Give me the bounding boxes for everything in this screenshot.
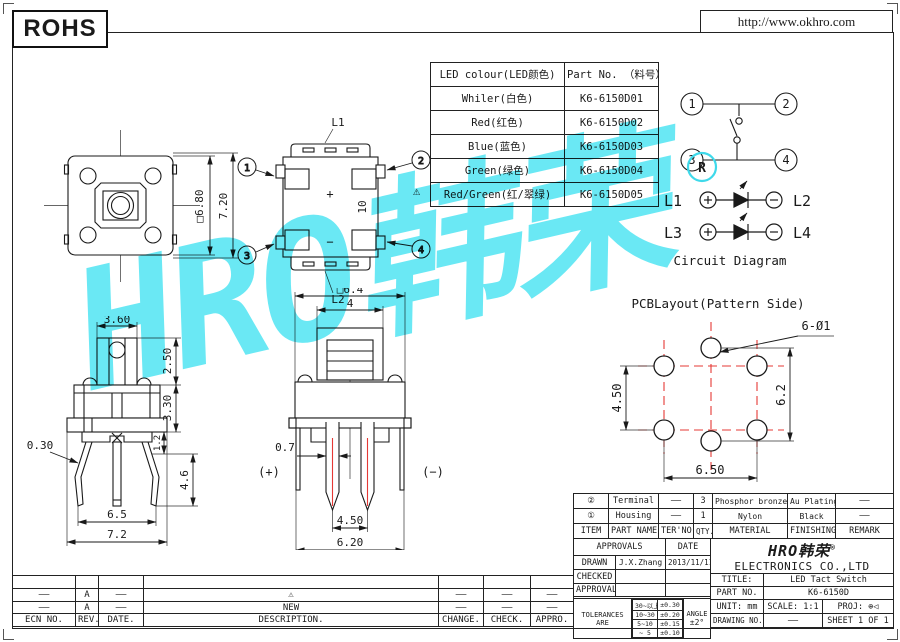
part-no-cell: K6-6150D05 [565,183,659,207]
date-cell [99,576,144,589]
date-cell: —— [99,602,144,614]
qty-cell: 1 [694,509,713,524]
change-cell: —— [439,589,484,602]
led-l4-label: L4 [793,224,811,242]
table-row: Blue(蓝色) K6-6150D03 [431,135,659,159]
parts-header-row: ITEM PART NAME TER'NO. QTY. MATERIAL FIN… [574,524,894,539]
part-name-header: PART NAME [609,524,659,539]
led-colour-cell: Red/Green(红/翠绿) [431,183,565,207]
remark-header: REMARK [836,524,894,539]
led-colour-header: LED colour(LED颜色) [431,63,565,87]
tolerance-strip: TOLERANCES ARE 30~以上±0.30 10~30±0.20 5~1… [573,598,711,639]
finishing-cell: Au Plating [788,494,836,509]
desc-cell [144,576,439,589]
approvals-date [666,584,711,597]
material-cell: Phosphor bronze [713,494,788,509]
ter-no-header: TER'NO. [659,524,694,539]
terminal-4-label: 4 [782,153,789,167]
ecn-cell: —— [13,589,76,602]
table-row: ① Housing —— 1 Nylon Black —— [574,509,894,524]
rev-cell [76,576,99,589]
check-header: CHECK. [484,614,531,627]
terminal-3-callout: 3 [244,251,250,262]
dim-label: 1.2 [153,435,163,451]
table-row: DRAWING NO. —— SHEET 1 OF 1 [711,614,894,628]
appro-cell: —— [531,602,574,614]
change-cell [439,576,484,589]
tolerance-mini-table: 30~以上±0.30 10~30±0.20 5~10±0.15 ~ 5±0.10 [632,599,683,638]
company-name: ELECTRONICS CO.,LTD [713,560,891,573]
checked-date [666,570,711,584]
approvals-header: APPROVALS [574,539,666,556]
tol-value: ±0.10 [658,629,683,638]
approvals-label: APPROVALS [574,584,616,597]
table-row: CHECKED [574,570,711,584]
revision-header-row: ECN NO. REV. DATE. DESCRIPTION. CHANGE. … [13,614,574,627]
part-no-cell: K6-6150D02 [565,111,659,135]
title-block: HRO韩荣® ELECTRONICS CO.,LTD TITLE: LED Ta… [710,538,894,628]
ecn-cell: —— [13,602,76,614]
tol-range: ~ 5 [633,629,658,638]
check-cell: —— [484,602,531,614]
terminal-1-label: 1 [688,97,695,111]
dim-label: 7.20 [217,193,230,220]
table-row: TITLE: LED Tact Switch [711,574,894,587]
check-cell: —— [484,589,531,602]
dim-label: 4.50 [610,384,624,413]
led-row-1 [700,181,782,208]
dim-label: 0.7 [275,441,295,454]
led-l2-label: L2 [793,192,811,210]
led-row-2 [700,213,782,240]
table-row: ② Terminal —— 3 Phosphor bronze Au Plati… [574,494,894,509]
table-row: —— A —— ⚠ —— —— —— [13,589,574,602]
dim-label: 6.20 [337,536,364,549]
revision-table: —— A —— ⚠ —— —— —— —— A —— NEW —— —— —— … [12,575,574,627]
table-row: Whiler(白色) K6-6150D01 [431,87,659,111]
qty-header: QTY. [694,524,713,539]
bottom-view-drawing: + − 10 L1 L2 1 2 3 4 [233,112,438,307]
title-label: TITLE: [711,574,764,587]
dim-label: 4.50 [337,514,364,527]
top-view-drawing: □6.80 7.20 [38,114,253,304]
part-no-value: K6-6150D [764,587,894,600]
tol-value: ±0.20 [658,611,683,620]
dim-label: 7.2 [107,528,127,541]
drawn-date: 2013/11/11 [666,556,711,570]
ecn-header: ECN NO. [13,614,76,627]
item-cell: ② [574,494,609,509]
terminal-2-callout: 2 [418,156,424,167]
title-value: LED Tact Switch [764,574,894,587]
polarity-plus-mark: + [326,187,333,201]
front-view-drawing: □6.4 4 0.7 (+) (−) 4.50 6.20 [245,288,460,550]
pcb-title: PCBLayout(Pattern Side) [631,296,804,311]
cyan-registered-mark: R [688,153,716,181]
led-colour-cell: Blue(蓝色) [431,135,565,159]
proj-label: PROJ: [838,602,864,612]
finishing-header: FINISHING [788,524,836,539]
sheet-cell: SHEET 1 OF 1 [823,614,894,628]
pcb-layout: PCBLayout(Pattern Side) 6-Ø1 4.50 [598,296,893,514]
table-row: Red(红色) K6-6150D02 [431,111,659,135]
table-row: APPROVALS [574,584,711,597]
dim-label: 6.50 [696,463,725,477]
table-row: UNIT: mm SCALE: 1:1 PROJ: ⊕◁ [711,600,894,614]
material-header: MATERIAL [713,524,788,539]
third-angle-projection-icon: ⊕◁ [868,602,878,612]
material-cell: Nylon [713,509,788,524]
table-row: PART NO. K6-6150D [711,587,894,600]
part-no-cell: K6-6150D01 [565,87,659,111]
desc-cell: NEW [144,602,439,614]
dim-label: 3.60 [104,316,131,326]
tol-range: 10~30 [633,611,658,620]
date-header: DATE [666,539,711,556]
table-row: —— A —— NEW —— —— —— [13,602,574,614]
pcb-dimensions: 6-Ø1 4.50 6.2 6.50 [610,319,834,482]
desc-cell: ⚠ [144,589,439,602]
table-row: APPROVALS DATE [574,539,711,556]
date-header: DATE. [99,614,144,627]
table-row: Green(绿色) K6-6150D04 [431,159,659,183]
part-no-header: Part No. （料号） [565,63,659,87]
remark-cell: —— [836,494,894,509]
table-row: Red/Green(红/翠绿) K6-6150D05 [431,183,659,207]
front-view-body [289,328,411,510]
drawn-name: J.X.Zhang [616,556,666,570]
part-no-cell: K6-6150D03 [565,135,659,159]
item-cell: ① [574,509,609,524]
ecn-cell [13,576,76,589]
dim-label: 4 [347,297,354,310]
table-row: HRO韩荣® ELECTRONICS CO.,LTD [711,539,894,574]
qty-cell: 3 [694,494,713,509]
dim-label: 4.6 [178,470,191,490]
part-no-label: PART NO. [711,587,764,600]
drawn-label: DRAWN [574,556,616,570]
appro-header: APPRO. [531,614,574,627]
led-table-header: LED colour(LED颜色) Part No. （料号） [431,63,659,87]
corner-mark [3,629,14,640]
table-row [13,576,574,589]
ter-no-cell: —— [659,494,694,509]
table-row: TOLERANCES ARE 30~以上±0.30 10~30±0.20 5~1… [574,599,711,639]
tol-value: ±0.30 [658,600,683,611]
appro-cell [531,576,574,589]
website-box: http://www.okhro.com [700,10,893,33]
table-row: DRAWN J.X.Zhang 2013/11/11 [574,556,711,570]
circuit-diagram: 1 2 3 4 R L1 L2 [652,82,892,277]
unit-cell: UNIT: mm [711,600,764,614]
dim-label: □6.4 [337,288,364,296]
dim-label: 6.5 [107,508,127,521]
tol-range: 30~以上 [633,600,658,611]
switch-schematic [681,93,797,171]
part-name-cell: Terminal [609,494,659,509]
polarity-minus-mark: − [326,235,333,249]
led-colour-table: LED colour(LED颜色) Part No. （料号） Whiler(白… [430,62,659,207]
check-cell [484,576,531,589]
parts-table: ② Terminal —— 3 Phosphor bronze Au Plati… [573,493,894,539]
registered-icon: ® [830,543,836,552]
dim-label: 10 [356,200,369,213]
scale-cell: SCALE: 1:1 [764,600,823,614]
tol-value: ±0.15 [658,620,683,629]
drawing-no-label: DRAWING NO. [711,614,764,628]
circuit-caption: Circuit Diagram [674,253,787,268]
terminal-4-callout: 4 [418,245,424,256]
tolerance-values: 30~以上±0.30 10~30±0.20 5~10±0.15 ~ 5±0.10 [632,599,684,639]
terminal-1-callout: 1 [244,163,250,174]
approvals-table: APPROVALS DATE DRAWN J.X.Zhang 2013/11/1… [573,538,711,597]
drawing-no-value: —— [764,614,823,628]
polarity-plus-label: (+) [258,465,280,479]
tol-range: 5~10 [633,620,658,629]
approvals-name [616,584,666,597]
remark-cell: —— [836,509,894,524]
led-colour-cell: Whiler(白色) [431,87,565,111]
led-colour-cell: Green(绿色) [431,159,565,183]
corner-mark [887,629,898,640]
led-l3-label: L3 [664,224,682,242]
rev-cell: A [76,589,99,602]
ter-no-cell: —— [659,509,694,524]
angle-tolerance: ANGLE ±2° [684,599,711,639]
rev-header: REV. [76,614,99,627]
part-no-cell: K6-6150D04 [565,159,659,183]
datasheet-page: ROHS http://www.okhro.com LED colour(LED… [0,0,900,642]
checked-label: CHECKED [574,570,616,584]
side-view-drawing: 3.60 2.50 3.30 1.2 4.6 0.30 6.5 7.2 [12,316,247,556]
company-block: HRO韩荣® ELECTRONICS CO.,LTD [711,539,894,574]
rohs-label: ROHS [23,15,96,43]
projection-cell: PROJ: ⊕◁ [823,600,894,614]
polarity-minus-label: (−) [422,465,444,479]
dim-label: 6.2 [774,384,788,406]
checked-name [616,570,666,584]
tolerances-label: TOLERANCES ARE [574,599,632,639]
desc-header: DESCRIPTION. [144,614,439,627]
registered-r: R [698,161,706,176]
company-logo: HRO韩荣® [713,539,891,560]
rev-cell: A [76,602,99,614]
item-header: ITEM [574,524,609,539]
angle-value: ±2° [686,618,708,627]
side-view-body [67,338,167,506]
led-l1-label: L1 [331,116,344,129]
led-l1-label: L1 [664,192,682,210]
finishing-cell: Black [788,509,836,524]
change-cell: —— [439,602,484,614]
date-cell: —— [99,589,144,602]
website-url[interactable]: http://www.okhro.com [738,14,856,30]
part-name-cell: Housing [609,509,659,524]
hole-spec-label: 6-Ø1 [802,319,831,333]
terminal-2-label: 2 [782,97,789,111]
dim-label: 2.50 [161,348,174,375]
led-colour-cell: Red(红色) [431,111,565,135]
dim-label: □6.80 [193,189,206,222]
dim-label: 3.30 [161,395,174,422]
appro-cell: —— [531,589,574,602]
rohs-badge: ROHS [12,10,108,48]
dim-label: 0.30 [27,439,54,452]
change-header: CHANGE. [439,614,484,627]
angle-label: ANGLE [686,610,708,618]
